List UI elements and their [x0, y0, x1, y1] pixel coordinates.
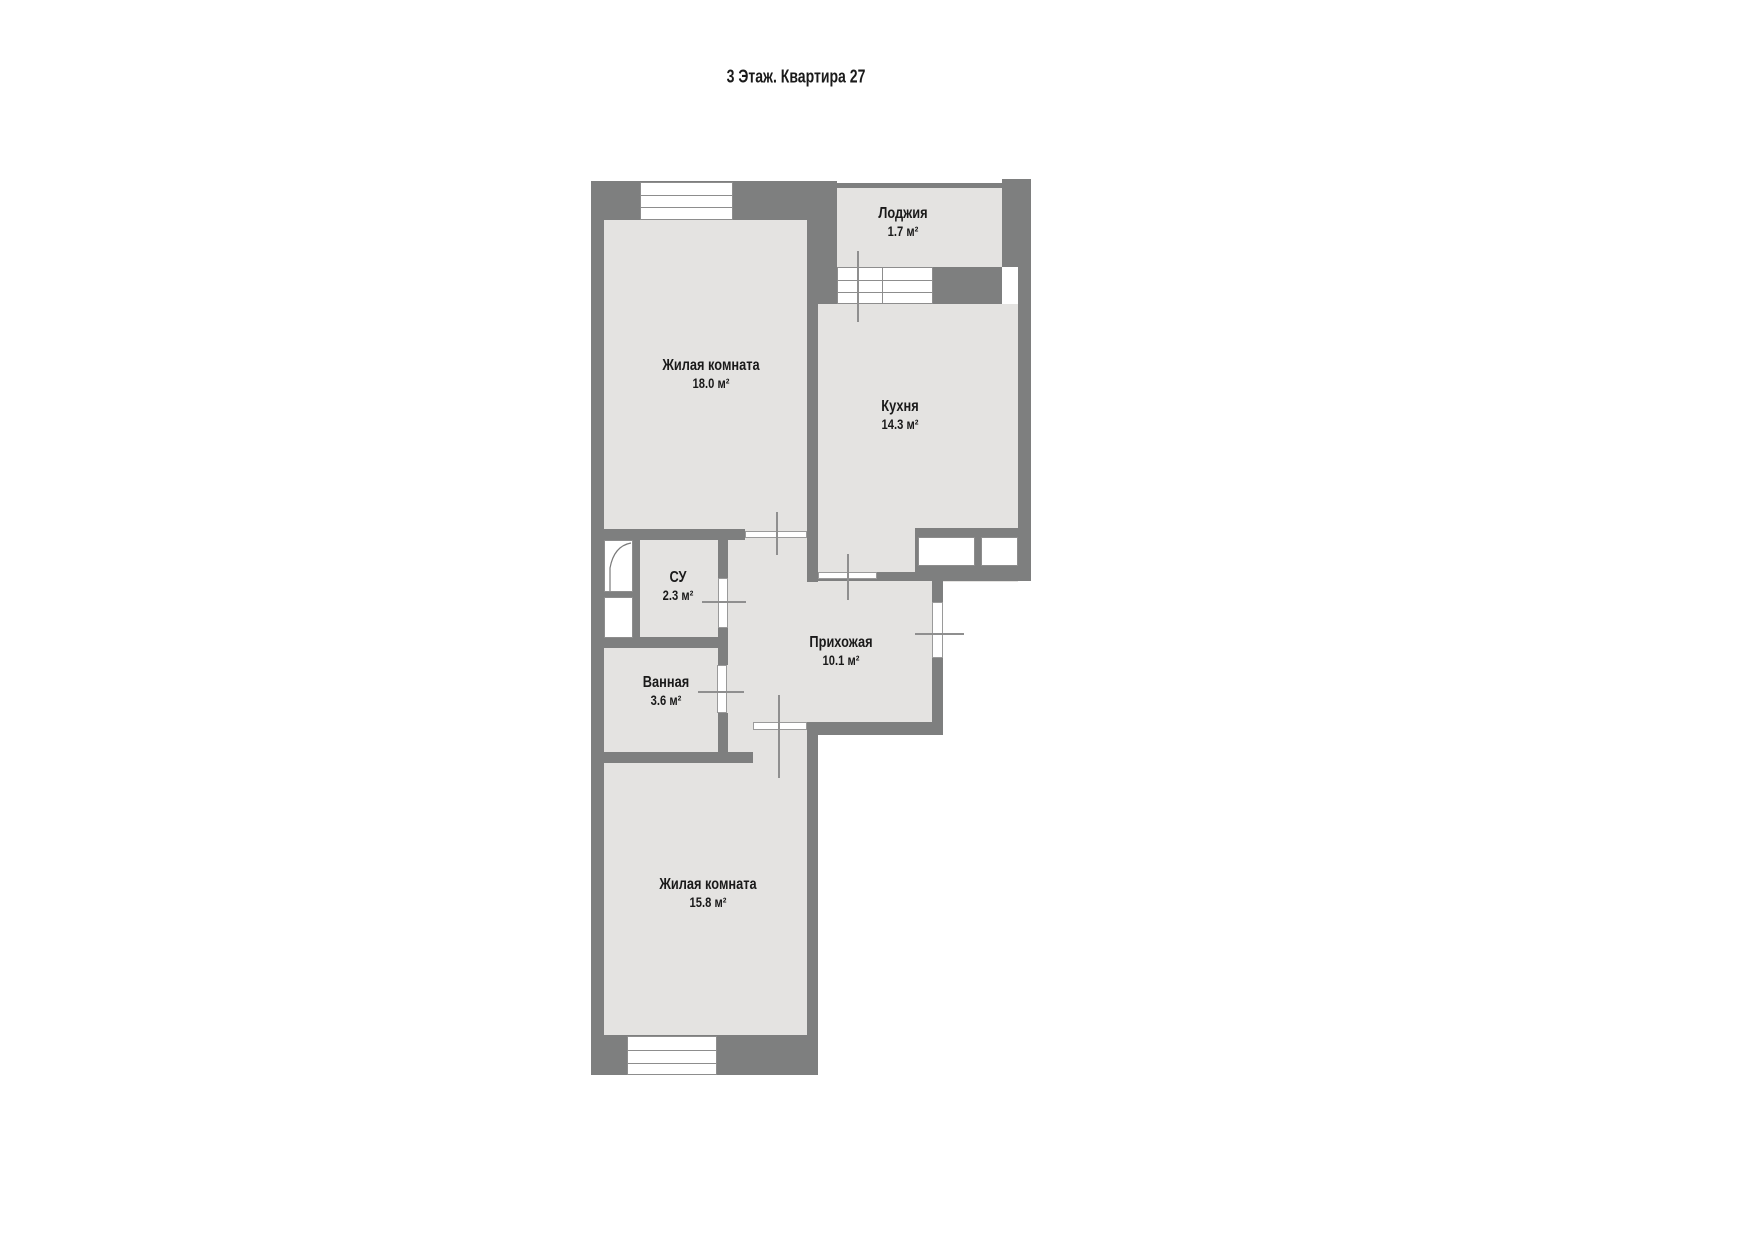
room-area: 15.8 м²	[659, 894, 756, 910]
door-line-living1	[776, 512, 778, 555]
window-mullion	[838, 292, 932, 293]
door-line-living2	[778, 695, 780, 778]
wall-right-lower	[1018, 267, 1031, 581]
room-area: 10.1 м²	[809, 652, 872, 668]
room-name: Ванная	[643, 674, 689, 692]
vent-shaft-kitchen-1	[918, 537, 975, 566]
room-name: СУ	[663, 569, 694, 587]
room-label-bath: Ванная 3.6 м²	[643, 674, 689, 708]
window-mullion	[838, 280, 932, 281]
wall-loggia-top	[837, 183, 1002, 188]
door-line-balcony	[857, 251, 859, 322]
page-title: 3 Этаж. Квартира 27	[727, 67, 866, 88]
window-living2	[627, 1036, 717, 1075]
door-opening-entry	[932, 602, 943, 658]
room-name: Кухня	[881, 398, 918, 416]
floor-plan-page: 3 Этаж. Квартира 27	[0, 0, 1755, 1241]
wall-lower-vertical	[807, 722, 818, 1075]
window-mullion	[641, 207, 732, 208]
room-label-wc: СУ 2.3 м²	[663, 569, 694, 603]
door-opening-bath	[717, 665, 727, 713]
door-opening-living2	[753, 722, 807, 730]
door-line-entry	[915, 633, 964, 635]
window-mullion	[628, 1063, 716, 1064]
window-divider	[882, 268, 883, 303]
wall-hall-bottom	[807, 722, 935, 735]
window-mullion	[641, 195, 732, 196]
wall-wc-right-3	[718, 713, 728, 763]
room-name: Жилая комната	[662, 357, 759, 375]
window-balcony-door	[837, 267, 933, 304]
door-line-wc	[702, 601, 746, 603]
room-label-kitchen: Кухня 14.3 м²	[881, 398, 918, 432]
wall-right-upper	[1002, 179, 1031, 267]
room-label-living1: Жилая комната 18.0 м²	[662, 357, 759, 391]
room-name: Лоджия	[878, 205, 927, 223]
room-label-loggia: Лоджия 1.7 м²	[878, 205, 927, 239]
wall-entry-lower	[932, 658, 943, 735]
room-hall-floor-left	[723, 537, 807, 752]
closet-door-arc	[605, 541, 634, 593]
wall-kitchen-top-right	[933, 267, 1002, 304]
room-area: 3.6 м²	[643, 692, 689, 708]
door-line-bath	[698, 691, 744, 693]
room-label-living2: Жилая комната 15.8 м²	[659, 876, 756, 910]
wall-wc-right-2	[718, 628, 728, 665]
room-area: 2.3 м²	[663, 587, 694, 603]
room-label-hall: Прихожая 10.1 м²	[809, 634, 872, 668]
wall-wc-right-1	[718, 540, 728, 578]
room-area: 1.7 м²	[878, 223, 927, 239]
door-line-kitchen	[847, 554, 849, 600]
wall-entry-upper	[932, 581, 943, 602]
vent-shaft-left	[604, 597, 633, 638]
door-opening-wc	[718, 578, 728, 628]
room-area: 14.3 м²	[881, 416, 918, 432]
window-living1	[640, 182, 733, 220]
wall-mid-vertical	[807, 220, 818, 582]
vent-shaft-kitchen-2	[981, 537, 1018, 566]
room-area: 18.0 м²	[662, 375, 759, 391]
wall-living2-top	[591, 752, 753, 763]
wall-left	[591, 181, 604, 1075]
room-name: Прихожая	[809, 634, 872, 652]
closet-box	[604, 540, 633, 592]
window-mullion	[628, 1050, 716, 1051]
room-name: Жилая комната	[659, 876, 756, 894]
